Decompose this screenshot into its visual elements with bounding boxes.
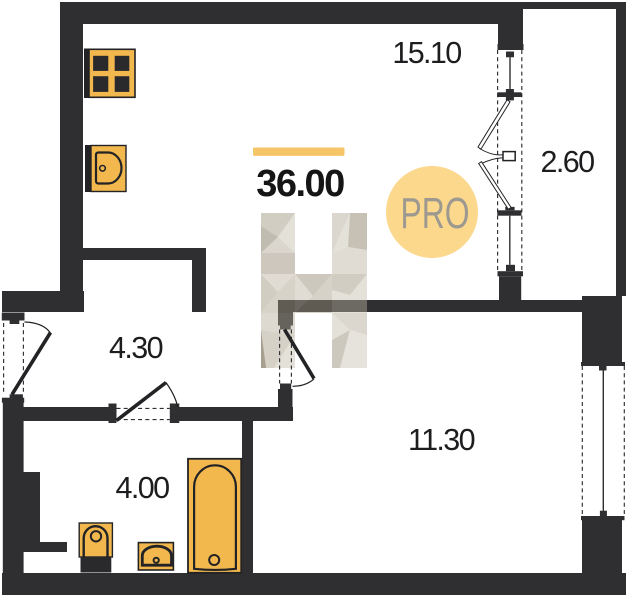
svg-text:2.60: 2.60	[541, 145, 595, 179]
svg-text:4.30: 4.30	[109, 331, 163, 365]
svg-text:PRO: PRO	[401, 189, 470, 238]
svg-text:15.10: 15.10	[392, 36, 461, 70]
svg-text:11.30: 11.30	[408, 423, 475, 457]
svg-text:36.00: 36.00	[256, 163, 344, 205]
svg-text:4.00: 4.00	[116, 471, 170, 505]
